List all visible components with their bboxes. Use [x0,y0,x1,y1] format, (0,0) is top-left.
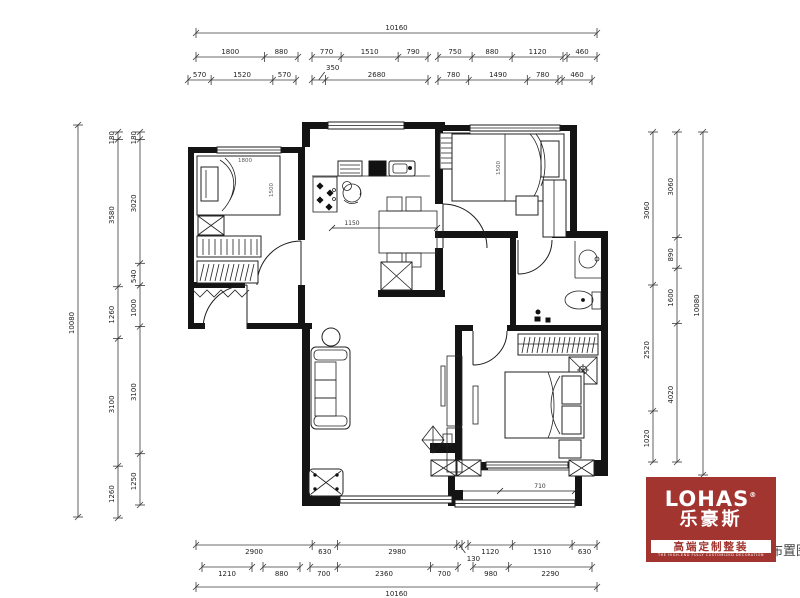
svg-text:1260: 1260 [108,485,116,503]
svg-text:460: 460 [575,48,588,56]
sink-icon [389,161,415,176]
svg-text:1020: 1020 [643,430,651,448]
svg-text:750: 750 [448,48,461,56]
svg-text:350: 350 [326,64,339,72]
dim-right-total: 10080 [693,129,708,478]
washbasin-icon [575,241,601,278]
bay-dim: 710 [460,483,578,494]
person-icon [343,182,362,204]
bathroom-door-icon [518,240,552,274]
svg-text:1120: 1120 [529,48,547,56]
dim-left-total: 10080 [68,122,83,520]
dining-dim: 1150 [329,220,440,231]
svg-text:3100: 3100 [130,383,138,401]
master-dresser-icon [473,386,478,424]
svg-text:2680: 2680 [368,71,386,79]
dim-bottom-total: 10160 [193,582,600,598]
svg-text:1260: 1260 [108,306,116,324]
living-window-icon [340,496,452,503]
bedroom1-bed-icon [197,156,280,215]
svg-text:460: 460 [570,71,583,79]
svg-text:880: 880 [275,570,288,578]
svg-text:1600: 1600 [667,289,675,307]
logo-band: 高端定制整装 THE HIGH-END FULLY CUSTOMIZED DEC… [651,540,771,558]
kitchen-window-icon [328,122,404,129]
dim-right-col2: 306089016004020 [667,129,682,465]
svg-text:700: 700 [438,570,451,578]
logo-subline: THE HIGH-END FULLY CUSTOMIZED DECORATION [651,553,771,558]
svg-text:1510: 1510 [533,548,551,556]
bedroom1-window-icon [217,147,281,153]
stove-icon [369,161,386,176]
svg-text:780: 780 [447,71,460,79]
logo-brand: LOHAS® [646,484,776,510]
dim-top-row3c: 7801490780 [435,71,561,85]
dim-right-col1: 306025201020 [643,129,658,465]
dim-top-row3a: 5701520570 [185,71,299,85]
shoe-cabinet-icon [309,469,343,496]
svg-text:630: 630 [578,548,591,556]
svg-text:1000: 1000 [130,299,138,317]
dim-bottom-row2c: 7002360700 [307,562,461,578]
svg-text:2520: 2520 [643,341,651,359]
svg-text:3060: 3060 [667,178,675,196]
svg-text:890: 890 [667,248,675,261]
svg-text:630: 630 [318,548,331,556]
svg-text:700: 700 [317,570,330,578]
svg-text:770: 770 [320,48,333,56]
dim-top-row2c: 7508801120 [435,48,566,62]
dim-left-col2: 1803580126031001260 [108,129,123,521]
svg-text:1210: 1210 [218,570,236,578]
master-wardrobe-icon [518,334,598,355]
svg-text:1800: 1800 [221,48,239,56]
bedroom1-door-icon [257,241,301,285]
toilet-icon [565,291,601,309]
dim-top-row2d: 460 [564,48,600,62]
bedroom1-curtain-icon [193,261,258,297]
svg-text:1510: 1510 [361,48,379,56]
furniture: 1150 1500 [193,133,601,496]
bedroom2-desk-icon [516,196,538,215]
dining-table-icon [379,197,437,267]
dim-bottom-row2d: 9802290 [470,562,595,578]
svg-text:710: 710 [534,483,546,490]
svg-text:1500: 1500 [269,183,275,197]
bedroom1-stool-icon [198,216,224,235]
side-table-icon [322,328,340,346]
logo-brand-cn: 乐豪斯 [646,510,776,529]
svg-text:2360: 2360 [375,570,393,578]
bedroom2-window-icon [470,125,560,131]
svg-text:880: 880 [485,48,498,56]
bedroom2-wardrobe-icon [543,180,566,237]
svg-text:10080: 10080 [68,312,76,334]
bedroom2-door-icon [443,204,487,248]
dim-bottom-row1a: 29006302980130 [193,540,480,563]
svg-text:1150: 1150 [344,220,359,227]
svg-text:10080: 10080 [693,294,701,316]
svg-text:10160: 10160 [385,24,407,32]
dim-bottom-row1b: 11201510630 [465,540,600,556]
registered-mark-icon: ® [749,491,757,499]
floorplan-canvas: 10160 1800880 7701510790 7508801120 460 … [0,0,800,598]
sofa-icon [311,347,350,429]
svg-text:980: 980 [484,570,497,578]
svg-text:1500: 1500 [496,161,502,175]
svg-text:540: 540 [130,270,138,283]
dim-top-row3d: 460 [559,71,595,85]
range-hood-icon [338,161,362,176]
dim-bottom-row2a: 1210 [199,562,255,578]
svg-text:1120: 1120 [481,548,499,556]
svg-text:570: 570 [193,71,206,79]
svg-text:780: 780 [536,71,549,79]
flue-icon [381,262,412,290]
kitchen-counter-icon [312,176,430,212]
dim-top-total: 10160 [193,24,600,38]
svg-text:1490: 1490 [489,71,507,79]
dim-left-col3: 1803020540100031001250 [130,129,145,508]
master-south-window-icon [486,462,568,468]
svg-text:3060: 3060 [643,202,651,220]
dim-top-row2a: 1800880 [193,48,301,62]
svg-text:570: 570 [278,71,291,79]
svg-text:1520: 1520 [233,71,251,79]
master-bed-icon [505,372,584,438]
floor-drain-icon [535,310,550,322]
svg-text:3100: 3100 [108,395,116,413]
svg-text:4020: 4020 [667,386,675,404]
master-door-icon [473,331,507,365]
bedroom1-wardrobe-icon [197,236,261,257]
svg-text:1250: 1250 [130,472,138,490]
svg-text:880: 880 [275,48,288,56]
dim-top-row3b: 3502680 [309,64,431,85]
svg-text:1800: 1800 [238,158,252,164]
svg-text:10160: 10160 [385,590,407,598]
lohas-logo: LOHAS® 乐豪斯 高端定制整装 THE HIGH-END FULLY CUS… [646,477,776,562]
master-nightstand-icon [559,440,581,458]
svg-text:3580: 3580 [108,206,116,224]
svg-text:3020: 3020 [130,194,138,212]
entry-door-icon [203,285,247,329]
svg-text:130: 130 [467,555,480,563]
svg-text:2980: 2980 [388,548,406,556]
svg-text:790: 790 [406,48,419,56]
svg-text:180: 180 [108,131,116,144]
logo-tagline: 高端定制整装 [651,541,771,553]
dim-top-row2b: 7701510790 [309,48,431,62]
dim-bottom-row2b: 880 [260,562,303,578]
svg-text:180: 180 [130,131,138,144]
svg-text:2290: 2290 [541,570,559,578]
svg-text:2900: 2900 [245,548,263,556]
